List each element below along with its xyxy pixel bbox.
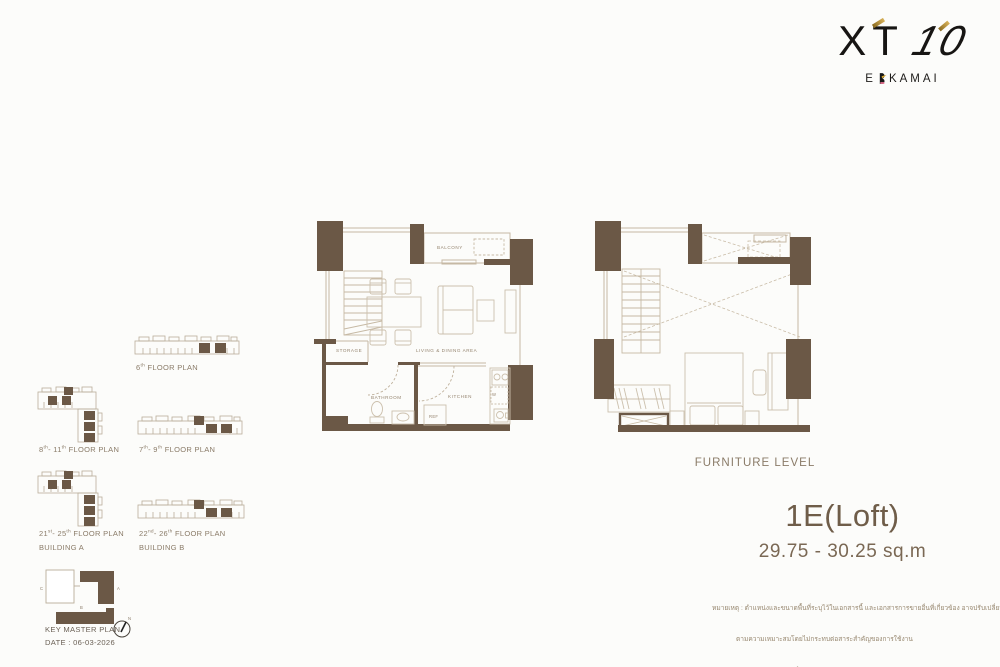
floor-plan-page: XT10 E KAMAI 6th FLOOR PLAN bbox=[0, 0, 1000, 667]
label-text: - 11 bbox=[48, 445, 62, 454]
master-building-a-label: A bbox=[117, 586, 120, 591]
label-text: FLOOR PLAN bbox=[145, 363, 198, 372]
label-text: FLOOR PLAN bbox=[66, 445, 119, 454]
balcony-ac-unit bbox=[474, 239, 504, 255]
desk-chair bbox=[753, 370, 766, 395]
label-text: - 9 bbox=[148, 445, 158, 454]
logo-wordmark: XT10 bbox=[815, 20, 990, 62]
key-master-plan-title: KEY MASTER PLAN bbox=[45, 625, 120, 634]
balcony-ac-unit bbox=[748, 241, 780, 257]
unit-name: 1E(Loft) bbox=[700, 498, 985, 534]
key-plan-label-22-26: 22nd- 26th FLOOR PLAN bbox=[139, 529, 226, 538]
master-building-c-label: C bbox=[40, 586, 43, 591]
staircase bbox=[622, 269, 660, 353]
label-text: - 25 bbox=[52, 529, 66, 538]
building-a-label: BUILDING A bbox=[39, 543, 84, 552]
remark-block: หมายเหตุ : ตำแหน่งและขนาดพื้นที่ระบุไว้ใ… bbox=[712, 584, 997, 667]
logo-subtitle: E KAMAI bbox=[815, 72, 990, 85]
bathroom-door-swing bbox=[368, 365, 398, 395]
structural-walls bbox=[314, 221, 533, 431]
key-plan-7-9 bbox=[136, 412, 248, 442]
toilet bbox=[370, 402, 384, 424]
label-text: - 26 bbox=[154, 529, 168, 538]
master-building-b-label: B bbox=[80, 605, 83, 610]
kitchen-sink bbox=[494, 409, 508, 422]
bed bbox=[685, 353, 743, 429]
cooktop bbox=[492, 370, 508, 385]
label-text: 21 bbox=[39, 529, 48, 538]
side-table bbox=[477, 300, 494, 321]
key-plan-label-6th: 6th FLOOR PLAN bbox=[136, 363, 198, 372]
key-plan-22-26 bbox=[136, 496, 250, 526]
staircase bbox=[344, 271, 382, 335]
nightstand-right bbox=[745, 411, 759, 426]
ref-label: REF bbox=[429, 414, 438, 419]
bathroom-label: BATHROOM bbox=[371, 395, 402, 400]
living-dining-label: LIVING & DINING AREA bbox=[416, 348, 478, 353]
balcony-label: BALCONY bbox=[437, 245, 463, 250]
label-text: 22 bbox=[139, 529, 148, 538]
remark-line-th-2: ตามความเหมาะสมโดยไม่กระทบต่อสาระสำคัญของ… bbox=[712, 635, 997, 645]
key-plan-8-11 bbox=[36, 380, 126, 444]
label-text: FLOOR PLAN bbox=[173, 529, 226, 538]
kitchen-label: KITCHEN bbox=[448, 394, 472, 399]
building-b-label: BUILDING B bbox=[139, 543, 185, 552]
key-master-plan-date: DATE : 06-03-2026 bbox=[45, 638, 115, 647]
toucan-k-icon bbox=[878, 72, 887, 85]
label-text: FLOOR PLAN bbox=[71, 529, 124, 538]
furniture-level-title: FURNITURE LEVEL bbox=[640, 457, 870, 469]
desk bbox=[768, 353, 788, 410]
logo-sub-e: E bbox=[865, 73, 876, 85]
logo-sub-kamai: KAMAI bbox=[889, 73, 940, 85]
washer-label: W bbox=[492, 392, 496, 397]
unit-info: 1E(Loft) 29.75 - 30.25 sq.m bbox=[700, 498, 985, 563]
main-floor-plan: BALCONY STORAGE LIVING & DINING AREA BAT… bbox=[314, 213, 536, 445]
furniture-level-plan bbox=[592, 213, 816, 448]
storage-label: STORAGE bbox=[336, 348, 362, 353]
brand-logo: XT10 E KAMAI bbox=[815, 20, 990, 85]
key-plan-21-25 bbox=[36, 464, 126, 528]
key-plan-label-21-25: 21st- 25th FLOOR PLAN bbox=[39, 529, 124, 538]
remark-line-th-1: หมายเหตุ : ตำแหน่งและขนาดพื้นที่ระบุไว้ใ… bbox=[712, 604, 997, 614]
nightstand-left bbox=[670, 411, 684, 426]
vanity-sink bbox=[392, 411, 414, 424]
key-plan-label-8-11: 8th- 11th FLOOR PLAN bbox=[39, 445, 119, 454]
double-height-void-x bbox=[624, 271, 800, 337]
key-plan-label-7-9: 7th- 9th FLOOR PLAN bbox=[139, 445, 215, 454]
compass-n-label: N bbox=[128, 616, 131, 621]
sofa bbox=[438, 286, 473, 334]
tv-cabinet bbox=[505, 290, 516, 333]
key-plan-6th-floor bbox=[133, 332, 245, 362]
label-text: FLOOR PLAN bbox=[162, 445, 215, 454]
unit-area: 29.75 - 30.25 sq.m bbox=[700, 541, 985, 563]
wardrobe bbox=[608, 385, 670, 412]
